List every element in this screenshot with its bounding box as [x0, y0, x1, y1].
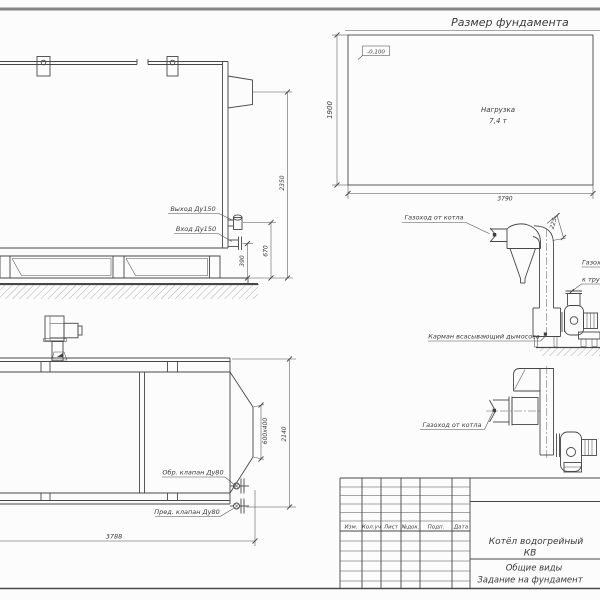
- flue-plan-view: Газоход от котла: [420, 366, 597, 472]
- flue-plan-linework: [486, 366, 597, 472]
- dim-foundation-depth-value: 1900: [326, 101, 334, 119]
- boiler-side-view: Выход Ду150 Вход Ду150 2350 670: [0, 57, 293, 300]
- dim-outlet-height-value: 670: [263, 245, 270, 257]
- elevation-mark-value: -0,100: [367, 50, 385, 56]
- flue-plan-label-group: Газоход от котла: [420, 413, 493, 430]
- boiler-side-linework: [0, 57, 259, 300]
- flue-elevation-view: Газоход от котла 225 Газоход к трубе Кар…: [402, 213, 600, 356]
- doc-type-line1: Общие виды: [506, 564, 563, 574]
- title-block-headers: Изм. Кол.уч Лист №док. Подп. Дата: [345, 525, 469, 531]
- suction-pocket-label-group: Карман всасывающий дымососа: [428, 333, 547, 342]
- doc-type-line2: Задание на фундамент: [477, 576, 583, 586]
- outlet-label: Выход Ду150: [170, 205, 215, 213]
- dim-flue-offset: 225: [547, 213, 566, 241]
- ground-hatch: [0, 285, 258, 299]
- col-izm: Изм.: [345, 525, 358, 531]
- product-name-line1: Котёл водогрейный: [489, 537, 584, 547]
- safety-valve-label: Пред. клапан Ду80: [154, 508, 219, 516]
- col-ndoc: №док.: [401, 525, 420, 531]
- foundation-load-value: 7,4 т: [489, 117, 507, 125]
- inlet-label: Вход Ду150: [176, 225, 216, 233]
- suction-pocket-label: Карман всасывающий дымососа: [428, 333, 540, 341]
- dim-flue-outlet: 600х400: [254, 403, 270, 462]
- dim-outlet-height: 670: [243, 220, 276, 281]
- dim-inlet-height-value: 390: [239, 255, 246, 267]
- flue-to-stack-label-line2: к трубе: [582, 276, 600, 284]
- flue-to-stack-label-line1: Газоход: [582, 259, 600, 267]
- dim-foundation-depth: 1900: [326, 33, 348, 188]
- boiler-plan-view: Обр. клапан Ду80 Пред. клапан Ду80 600х4…: [0, 316, 296, 546]
- drawing-canvas: Размер фундамента -0,100 Нагрузка 7,4 т …: [0, 0, 600, 600]
- dim-flue-outlet-value: 600х400: [262, 418, 269, 445]
- check-valve-label: Обр. клапан Ду80: [162, 469, 223, 477]
- dim-plan-width-value: 2140: [281, 426, 288, 441]
- title-block-names: Котёл водогрейный КВ Общие виды Задание …: [477, 537, 583, 586]
- flue-plan-from-boiler-label: Газоход от котла: [422, 421, 481, 429]
- dim-boiler-height-value: 2350: [279, 175, 286, 190]
- check-valve-label-group: Обр. клапан Ду80: [162, 469, 234, 485]
- drawing-sheet: Размер фундамента -0,100 Нагрузка 7,4 т …: [0, 0, 600, 600]
- flue-from-boiler-label-group: Газоход от котла: [402, 214, 490, 234]
- col-podp: Подп.: [428, 525, 445, 531]
- dim-boiler-height: 2350: [222, 90, 293, 281]
- dim-plan-length: 3788: [0, 490, 258, 546]
- dim-flue-offset-value: 225: [549, 217, 559, 230]
- foundation-load-label: Нагрузка: [481, 106, 515, 114]
- elevation-mark: -0,100: [358, 46, 390, 60]
- foundation-title: Размер фундамента: [451, 16, 569, 29]
- dim-foundation-width-value: 3790: [497, 196, 512, 203]
- title-block: Изм. Кол.уч Лист №док. Подп. Дата Котёл …: [340, 478, 600, 589]
- col-koluch: Кол.уч: [362, 525, 382, 531]
- product-name-line2: КВ: [524, 549, 537, 559]
- dim-foundation-width: 3790: [346, 185, 596, 203]
- boiler-plan-linework: [0, 316, 253, 514]
- outlet-label-group: Выход Ду150: [168, 205, 234, 221]
- dim-plan-length-value: 3788: [106, 533, 123, 541]
- inlet-label-group: Вход Ду150: [174, 225, 232, 242]
- col-data: Дата: [453, 525, 469, 531]
- safety-valve-label-group: Пред. клапан Ду80: [154, 508, 233, 517]
- foundation-plan-view: Размер фундамента -0,100 Нагрузка 7,4 т …: [326, 16, 600, 203]
- col-list: Лист: [383, 525, 399, 531]
- flue-to-stack-label-group: Газоход к трубе: [569, 259, 600, 295]
- flue-from-boiler-label: Газоход от котла: [404, 214, 463, 222]
